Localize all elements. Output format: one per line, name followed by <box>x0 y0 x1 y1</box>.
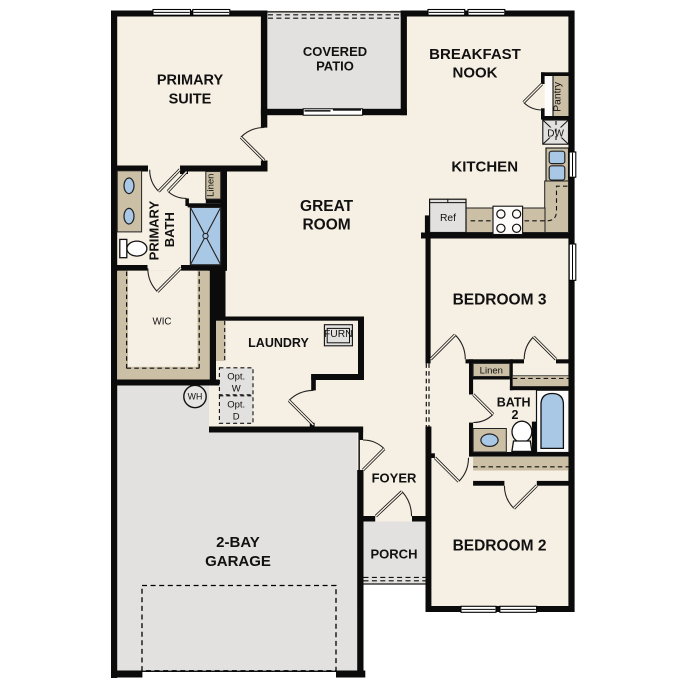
svg-text:PORCH: PORCH <box>371 546 418 561</box>
svg-text:ROOM: ROOM <box>302 217 350 234</box>
svg-text:D: D <box>233 412 240 423</box>
svg-text:BREAKFAST: BREAKFAST <box>429 46 521 63</box>
svg-text:2-BAY: 2-BAY <box>216 534 260 551</box>
svg-text:BEDROOM 2: BEDROOM 2 <box>453 538 547 555</box>
svg-text:NOOK: NOOK <box>453 64 498 81</box>
svg-text:PRIMARY: PRIMARY <box>157 73 224 89</box>
svg-text:Linen: Linen <box>206 174 217 197</box>
svg-text:PATIO: PATIO <box>316 58 354 73</box>
svg-text:2: 2 <box>512 408 519 422</box>
svg-text:Pantry: Pantry <box>553 81 564 112</box>
svg-text:W: W <box>232 384 241 395</box>
svg-text:GARAGE: GARAGE <box>205 553 271 570</box>
svg-text:BATH: BATH <box>162 212 177 247</box>
svg-text:KITCHEN: KITCHEN <box>451 159 518 176</box>
svg-text:WIC: WIC <box>152 317 171 328</box>
svg-text:Opt.: Opt. <box>227 400 245 411</box>
svg-text:LAUNDRY: LAUNDRY <box>248 336 309 350</box>
svg-text:FURN: FURN <box>324 329 353 340</box>
svg-text:BEDROOM 3: BEDROOM 3 <box>453 292 547 309</box>
svg-text:FOYER: FOYER <box>372 471 417 486</box>
svg-text:SUITE: SUITE <box>169 92 212 108</box>
svg-text:DW: DW <box>547 129 564 140</box>
svg-text:COVERED: COVERED <box>303 44 367 59</box>
svg-text:Opt.: Opt. <box>227 372 245 383</box>
svg-text:GREAT: GREAT <box>300 198 354 215</box>
svg-text:WH: WH <box>188 392 203 402</box>
svg-text:Ref: Ref <box>440 213 456 224</box>
svg-text:PRIMARY: PRIMARY <box>147 201 162 261</box>
svg-text:Linen: Linen <box>480 366 503 377</box>
